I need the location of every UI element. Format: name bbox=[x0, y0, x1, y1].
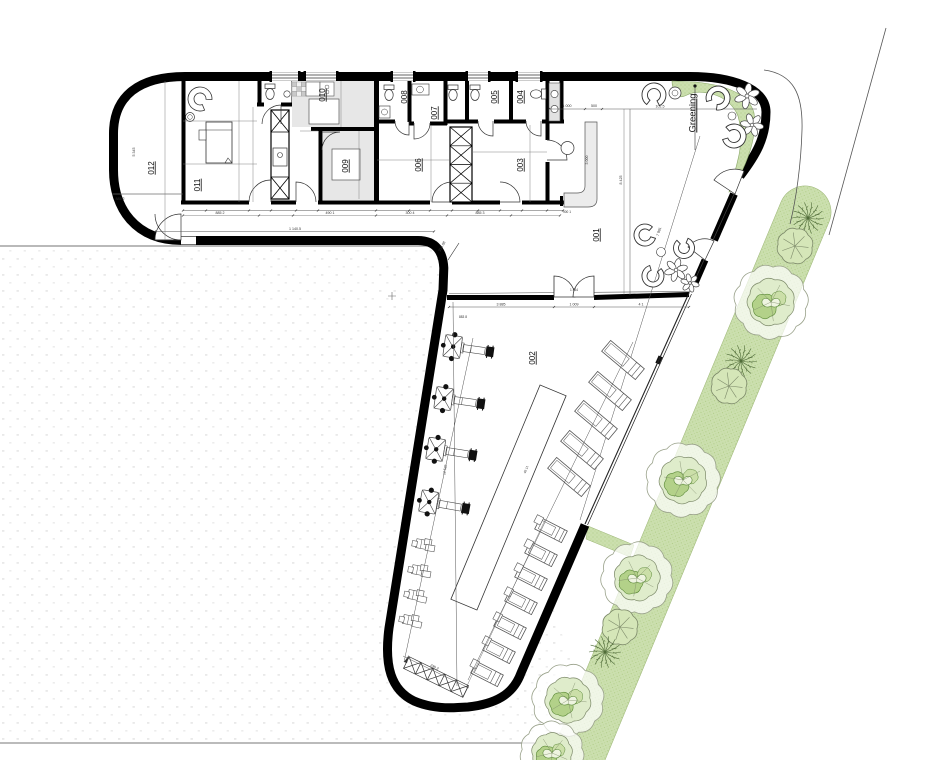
svg-text:885 2: 885 2 bbox=[116, 197, 125, 201]
svg-text:8 425: 8 425 bbox=[619, 176, 623, 185]
svg-text:1 434: 1 434 bbox=[570, 288, 578, 292]
svg-text:1 009: 1 009 bbox=[570, 303, 579, 307]
svg-text:900 1: 900 1 bbox=[563, 210, 571, 214]
svg-text:003: 003 bbox=[516, 158, 525, 172]
svg-text:500: 500 bbox=[591, 104, 597, 108]
svg-text:300 4: 300 4 bbox=[406, 211, 415, 215]
svg-text:4 1: 4 1 bbox=[639, 303, 644, 307]
svg-text:490 1: 490 1 bbox=[326, 211, 335, 215]
svg-text:Greening: Greening bbox=[687, 93, 698, 132]
svg-text:002: 002 bbox=[528, 351, 537, 365]
svg-text:5 345: 5 345 bbox=[132, 148, 136, 157]
svg-text:885 2: 885 2 bbox=[216, 211, 225, 215]
svg-text:001: 001 bbox=[592, 228, 601, 242]
svg-text:1 000: 1 000 bbox=[563, 104, 572, 108]
svg-text:1 140.5: 1 140.5 bbox=[289, 227, 301, 231]
svg-text:010: 010 bbox=[318, 88, 327, 102]
svg-text:885 3: 885 3 bbox=[476, 211, 485, 215]
svg-text:011: 011 bbox=[193, 178, 202, 191]
svg-text:007: 007 bbox=[430, 106, 439, 120]
svg-text:004: 004 bbox=[516, 90, 525, 104]
svg-text:012: 012 bbox=[147, 161, 156, 175]
svg-text:883 8: 883 8 bbox=[459, 315, 467, 319]
svg-text:009: 009 bbox=[341, 159, 350, 173]
svg-text:006: 006 bbox=[414, 158, 423, 172]
svg-text:005: 005 bbox=[490, 90, 499, 104]
svg-text:3 885: 3 885 bbox=[497, 303, 506, 307]
svg-text:008: 008 bbox=[400, 90, 409, 104]
svg-text:3 000: 3 000 bbox=[585, 156, 589, 165]
